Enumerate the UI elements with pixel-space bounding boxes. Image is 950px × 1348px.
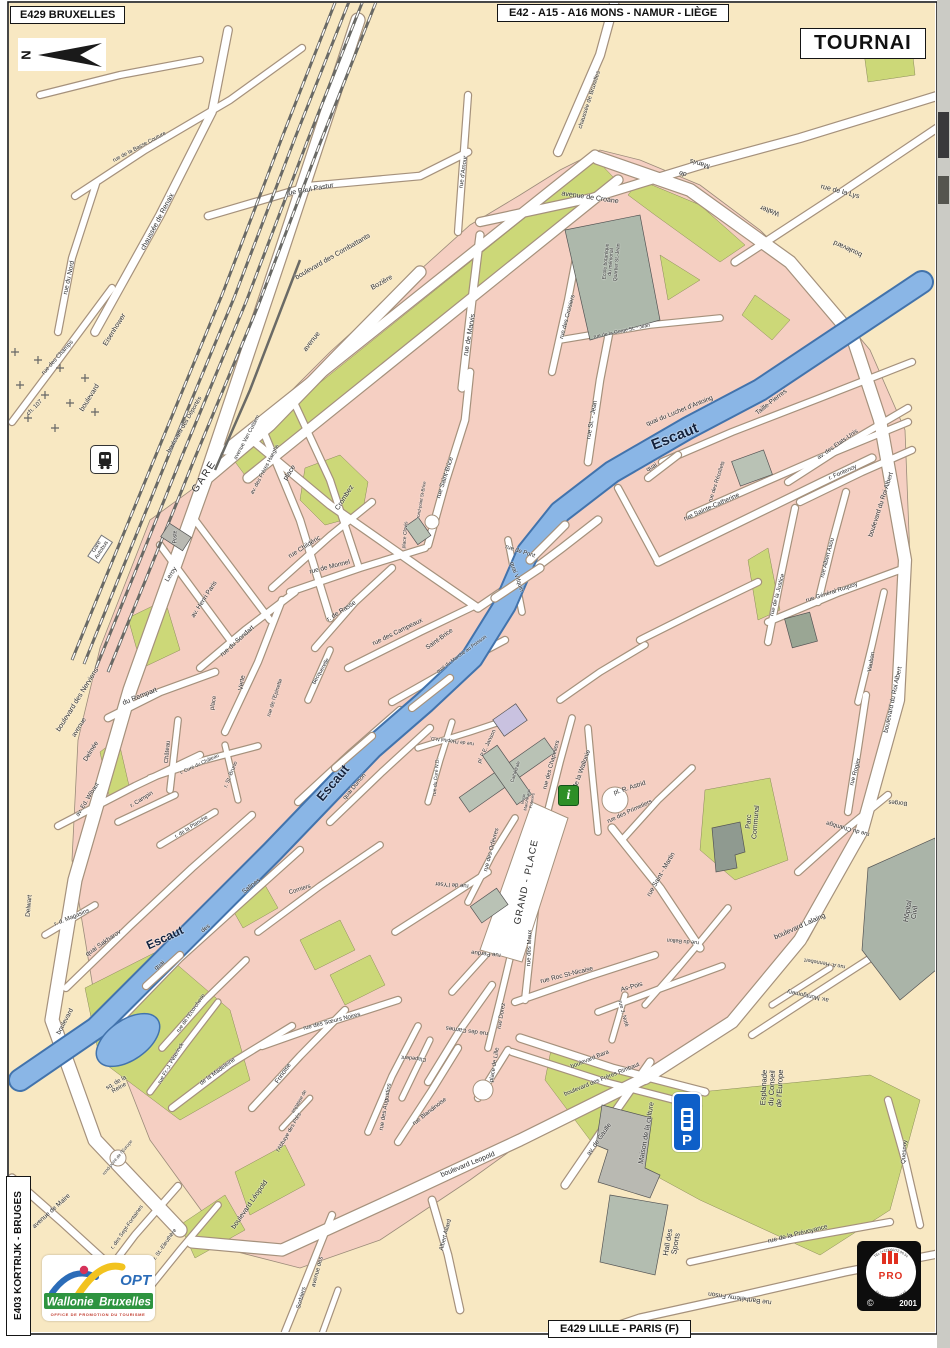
opt-region1: Wallonie — [46, 1297, 94, 1309]
bus-icon — [678, 1107, 696, 1133]
tourist-info-icon: i — [558, 785, 579, 806]
pro-name: PRO — [879, 1271, 904, 1282]
pro-publisher-logo: TEL (+32)050/72.06.54 FAX (+32)050/72.07… — [857, 1241, 921, 1311]
info-letter: i — [567, 788, 571, 804]
road-sign-e429-lille-paris: E429 LILLE - PARIS (F) — [548, 1320, 691, 1338]
train-station-icon — [90, 445, 119, 474]
tournai-city-map: chaussée de Bruxellesrue Paul Pasturaven… — [0, 0, 950, 1348]
road-sign-e42-mons-namur-liege: E42 - A15 - A16 MONS - NAMUR - LIÈGE — [497, 4, 729, 22]
opt-acronym: OPT — [120, 1272, 153, 1289]
city-title: TOURNAI — [800, 28, 926, 59]
compass-letter: N — [18, 50, 33, 59]
road-sign-e403-kortrijk-bruges: E403 KORTRIJK - BRUGES — [6, 1176, 31, 1336]
opt-wallonie-bruxelles-logo: OPT Wallonie Bruxelles OFFICE DE PROMOTI… — [42, 1255, 155, 1321]
opt-subtitle: OFFICE DE PROMOTION DU TOURISME — [51, 1312, 146, 1317]
parking-letter: P — [682, 1133, 692, 1148]
opt-region2: Bruxelles — [99, 1297, 151, 1309]
compass-north-arrow: N — [18, 38, 106, 71]
logo-red-dot — [80, 1266, 88, 1274]
pro-copyright: © — [867, 1298, 874, 1308]
bus-parking-sign: P — [672, 1092, 702, 1152]
scan-edge-artifact — [937, 0, 950, 1348]
map-canvas — [0, 0, 950, 1348]
pro-year: 2001 — [899, 1299, 917, 1308]
road-sign-e429-bruxelles: E429 BRUXELLES — [10, 6, 125, 24]
north-arrow-icon: N — [18, 38, 106, 71]
